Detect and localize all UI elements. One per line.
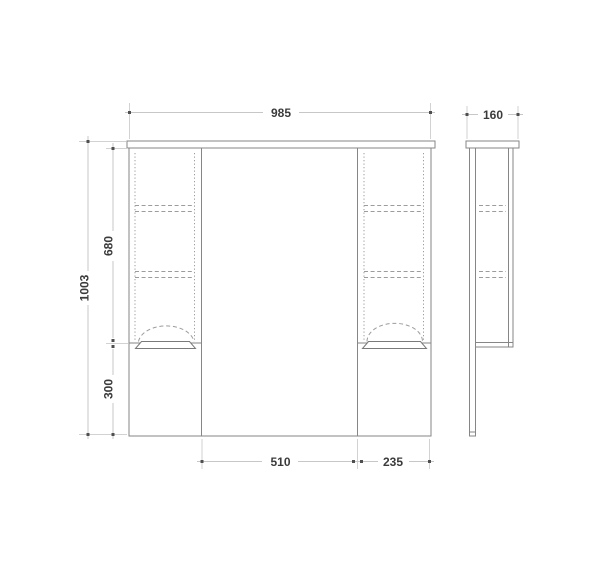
right-tray-shelf	[363, 342, 427, 349]
side-view	[466, 141, 519, 436]
side-box-outline	[476, 148, 514, 347]
dimension-arrow	[112, 433, 115, 436]
dimension-label-mirror-width: 510	[270, 455, 290, 469]
right-arch-hidden-line	[367, 323, 423, 341]
dimension-arrow	[87, 433, 90, 436]
dimension-arrow	[201, 460, 204, 463]
technical-drawing: 985 160 1003 680 300	[0, 0, 600, 579]
drawing-canvas: 985 160 1003 680 300	[0, 0, 600, 579]
dimension-label-overall-width: 985	[271, 106, 291, 120]
dimension-arrow	[428, 460, 431, 463]
front-body-outline	[129, 148, 431, 436]
dimension-label-upper-height: 680	[102, 236, 116, 256]
dimension-label-right-cabinet-width: 235	[383, 455, 403, 469]
dimension-arrow	[112, 147, 115, 150]
dimension-arrow	[87, 140, 90, 143]
side-mirror-panel	[470, 148, 476, 436]
dimension-arrow	[466, 113, 469, 116]
left-tray-shelf	[136, 342, 196, 349]
dimension-annotations: 985 160 1003 680 300	[78, 103, 524, 469]
front-cornice	[127, 141, 435, 148]
side-cornice	[466, 141, 519, 148]
dimension-arrow	[429, 111, 432, 114]
dimension-arrow	[352, 460, 355, 463]
dimension-arrow	[128, 111, 131, 114]
dimension-label-lower-height: 300	[102, 379, 116, 399]
dimension-label-overall-height: 1003	[78, 274, 92, 301]
left-arch-hidden-line	[139, 326, 195, 342]
front-view	[127, 141, 435, 436]
dimension-label-depth: 160	[483, 108, 503, 122]
dimension-arrow	[112, 339, 115, 342]
dimension-arrow	[517, 113, 520, 116]
dimension-arrow	[112, 345, 115, 348]
dimension-arrow	[360, 460, 363, 463]
